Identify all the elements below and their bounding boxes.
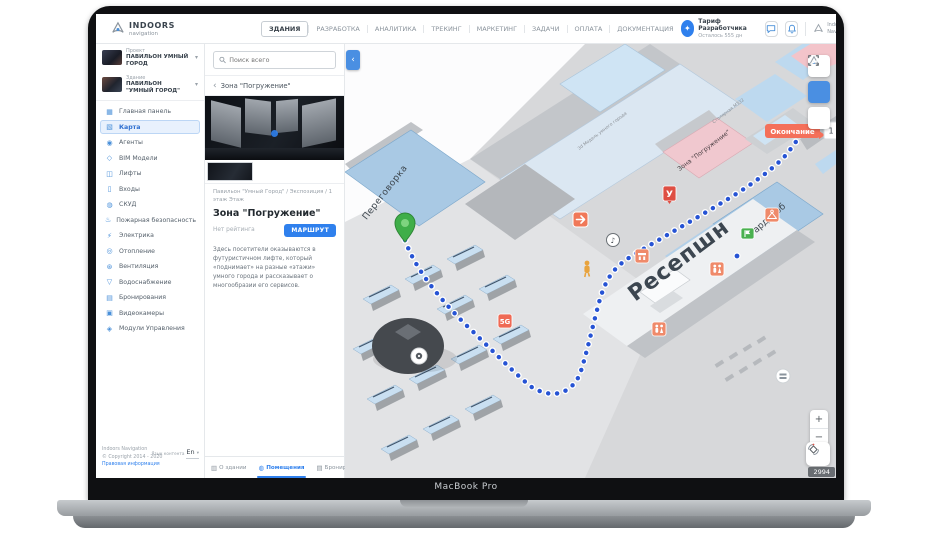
sidebar-item-dashboard[interactable]: ▦Главная панель	[100, 104, 200, 119]
sidebar-item-bim-models[interactable]: ◇BIM Модели	[100, 151, 200, 166]
access-control-icon: ◍	[105, 201, 114, 209]
sidebar-item-cameras[interactable]: ▣Видеокамеры	[100, 306, 200, 321]
notifications-button[interactable]	[785, 21, 798, 37]
tab-about-building[interactable]: ▥О здании	[205, 457, 253, 478]
fire-safety-icon: ♨	[105, 216, 111, 224]
room-description: Здесь посетители оказываются в футуристи…	[205, 237, 344, 291]
zoom-controls: + −	[810, 410, 828, 446]
sidebar-item-control-modules[interactable]: ◈Модули Управления	[100, 321, 200, 336]
room-title: Зона "Погружение"	[205, 205, 344, 219]
rotate-3d-icon	[806, 442, 821, 457]
tariff-days-left: Осталось 555 дн	[698, 33, 757, 39]
sidebar-item-electrics[interactable]: ⚡Электрика	[100, 228, 200, 243]
svg-text:У: У	[666, 190, 673, 200]
entrance-icon: ▯	[105, 185, 114, 193]
restroom-icon[interactable]	[710, 262, 724, 276]
sidebar-footer: Indoors Navigation © Copyright 2014 - 20…	[102, 446, 199, 468]
nav-analytics[interactable]: АНАЛИТИКА	[368, 22, 423, 36]
tariff-info[interactable]: ✦ Тариф РазработчикаОсталось 555 дн	[681, 18, 758, 39]
building-icon: ▥	[211, 464, 217, 472]
back-icon[interactable]: ‹	[213, 81, 217, 91]
tariff-title: Тариф Разработчика	[698, 18, 757, 32]
nav-tasks[interactable]: ЗАДАЧИ	[525, 22, 566, 36]
booking-icon: ▤	[105, 294, 114, 302]
zoom-in-button[interactable]: +	[810, 410, 828, 428]
nav-documentation[interactable]: ДОКУМЕНТАЦИЯ	[610, 22, 680, 36]
top-bar: INDOORSnavigation ЗДАНИЯ РАЗРАБОТКА АНАЛ…	[96, 14, 836, 44]
logo-title: INDOORS	[129, 21, 175, 30]
map-canvas[interactable]: Переговорка Ресепшн Гардероб Зона "Погру…	[345, 44, 836, 478]
app-logo[interactable]: INDOORSnavigation	[110, 21, 175, 37]
chevron-down-icon: ▾	[195, 54, 198, 61]
sidebar-item-acs[interactable]: ◍СКУД	[100, 197, 200, 212]
collapse-panel-button[interactable]: ‹	[346, 50, 360, 70]
logo-subtitle: navigation	[129, 31, 175, 37]
search-input[interactable]	[229, 57, 330, 64]
laptop-brand: MacBook Pro	[88, 482, 844, 492]
account-name-line2: Navigation	[827, 29, 836, 35]
dashboard-icon: ▦	[105, 108, 114, 116]
sidebar-item-ventilation[interactable]: ⊛Вентиляция	[100, 259, 200, 274]
rating-text: Нет рейтинга	[213, 227, 255, 233]
svg-text:♪: ♪	[611, 236, 616, 245]
green-flag-marker[interactable]	[741, 228, 754, 239]
restroom-icon[interactable]	[652, 322, 666, 336]
chat-icon	[766, 24, 776, 34]
expand-icon	[808, 55, 819, 66]
sidebar-item-water[interactable]: ▽Водоснабжение	[100, 275, 200, 290]
panel-tabs: ▥О здании ◍Помещения ▤Бронирование	[205, 456, 344, 478]
agents-icon: ◉	[105, 139, 114, 147]
language-selector[interactable]: Язык контента En ▾	[152, 448, 199, 459]
nav-marketing[interactable]: МАРКЕТИНГ	[470, 22, 524, 36]
calendar-icon: ▤	[316, 464, 322, 472]
back-title: Зона "Погружение"	[221, 82, 291, 90]
reception-desk-icon[interactable]	[635, 249, 649, 263]
camera-icon: ▣	[105, 309, 114, 317]
sidebar-item-elevators[interactable]: ◫Лифты	[100, 166, 200, 181]
ventilation-icon: ⊛	[105, 263, 114, 271]
search-row	[205, 44, 344, 76]
bim-icon: ◇	[105, 154, 114, 162]
rotate-3d-button[interactable]	[806, 442, 830, 466]
nav-tracking[interactable]: ТРЕКИНГ	[424, 22, 468, 36]
nav-buildings[interactable]: ЗДАНИЯ	[261, 21, 308, 37]
route-button[interactable]: МАРШРУТ	[284, 224, 336, 237]
laptop-base-lip	[73, 516, 855, 528]
audio-point-icon[interactable]: ♪	[607, 234, 620, 247]
chat-button[interactable]	[765, 21, 778, 37]
5g-badge[interactable]: 5G	[498, 314, 512, 328]
sidebar-item-fire-safety[interactable]: ♨Пожарная безопасность	[100, 213, 200, 228]
top-bar-right: ✦ Тариф РазработчикаОсталось 555 дн Indo…	[681, 18, 837, 39]
language-value: En	[186, 448, 194, 456]
svg-text:Окончание: Окончание	[770, 128, 815, 136]
route-mode-button[interactable]	[808, 81, 830, 103]
room-photo[interactable]	[205, 96, 344, 160]
breadcrumb: Павильон "Умный Город" / Экспозиция / 1 …	[205, 184, 344, 205]
project-name: ПАВИЛЬОН УМНЫЙ ГОРОД	[126, 54, 191, 67]
seating-marker[interactable]	[776, 369, 790, 383]
object-counter-badge: 2994	[808, 467, 835, 477]
map-icon: ▧	[105, 123, 114, 131]
dome-camera-badge[interactable]	[411, 348, 427, 364]
tab-rooms[interactable]: ◍Помещения	[253, 457, 311, 478]
bell-icon	[787, 24, 797, 34]
app-window: INDOORSnavigation ЗДАНИЯ РАЗРАБОТКА АНАЛ…	[96, 14, 836, 478]
blue-dot-marker[interactable]	[734, 253, 740, 259]
sidebar-item-heating[interactable]: ◎Отопление	[100, 244, 200, 259]
lightning-icon: ⚡	[105, 232, 114, 240]
language-label: Язык контента	[152, 451, 185, 456]
project-selector[interactable]: Проект ПАВИЛЬОН УМНЫЙ ГОРОД ▾	[96, 44, 204, 71]
search-icon	[219, 56, 226, 64]
laptop-base	[57, 500, 871, 516]
details-panel: ‹ Зона "Погружение" Павильон "Умный Горо…	[205, 44, 345, 478]
main-nav: ЗДАНИЯ РАЗРАБОТКА АНАЛИТИКА ТРЕКИНГ МАРК…	[261, 21, 680, 37]
chevron-down-icon: ▾	[195, 81, 198, 88]
elevator-icon: ◫	[105, 170, 114, 178]
map-controls-top	[808, 55, 830, 129]
marker-u-badge[interactable]: У	[663, 186, 676, 204]
legal-link[interactable]: Правовая информация	[102, 462, 160, 467]
nav-payment[interactable]: ОПЛАТА	[568, 22, 610, 36]
account-menu[interactable]: IndoorsNavigation	[813, 22, 836, 35]
project-thumbnail	[102, 50, 122, 65]
rating-row: Нет рейтинга МАРШРУТ	[205, 219, 344, 237]
chevron-down-icon: ▾	[197, 451, 199, 456]
floorplan-3d: Переговорка Ресепшн Гардероб Зона "Погру…	[345, 44, 836, 478]
fullscreen-button[interactable]	[808, 107, 830, 129]
sidebar-item-map[interactable]: ▧Карта	[100, 120, 200, 135]
macbook-mockup: MacBook Pro INDOORSnavigation ЗДАНИЯ РАЗ…	[0, 0, 928, 536]
sidebar: Проект ПАВИЛЬОН УМНЫЙ ГОРОД ▾ Здание ПАВ…	[96, 44, 205, 478]
svg-text:5G: 5G	[500, 318, 511, 326]
building-selector[interactable]: Здание ПАВИЛЬОН "УМНЫЙ ГОРОД" ▾	[96, 71, 204, 98]
sidebar-item-agents[interactable]: ◉Агенты	[100, 135, 200, 150]
divider	[96, 100, 204, 101]
sidebar-item-bookings[interactable]: ▤Бронирования	[100, 290, 200, 305]
search-box	[213, 51, 336, 69]
footer-company: Indoors Navigation	[102, 447, 147, 452]
building-thumbnail	[102, 77, 122, 92]
photo-thumbnail[interactable]	[207, 162, 253, 181]
indoors-logo-icon	[110, 21, 125, 36]
modules-icon: ◈	[105, 325, 114, 333]
photo-thumbnails	[205, 160, 344, 184]
heating-icon: ◎	[105, 247, 114, 255]
direction-arrow-marker[interactable]	[573, 212, 588, 227]
pointer-logo-icon	[813, 23, 824, 34]
rooms-icon: ◍	[259, 464, 265, 472]
account-name-line1: Indoors	[827, 22, 836, 28]
tariff-icon: ✦	[681, 20, 695, 37]
wardrobe-hanger-icon[interactable]	[765, 208, 779, 222]
nav-development[interactable]: РАЗРАБОТКА	[309, 22, 367, 36]
sidebar-item-entrances[interactable]: ▯Входы	[100, 182, 200, 197]
photo-logo-dot	[271, 130, 278, 137]
back-header: ‹ Зона "Погружение"	[205, 76, 344, 96]
water-icon: ▽	[105, 278, 114, 286]
building-name: ПАВИЛЬОН "УМНЫЙ ГОРОД"	[126, 81, 191, 94]
